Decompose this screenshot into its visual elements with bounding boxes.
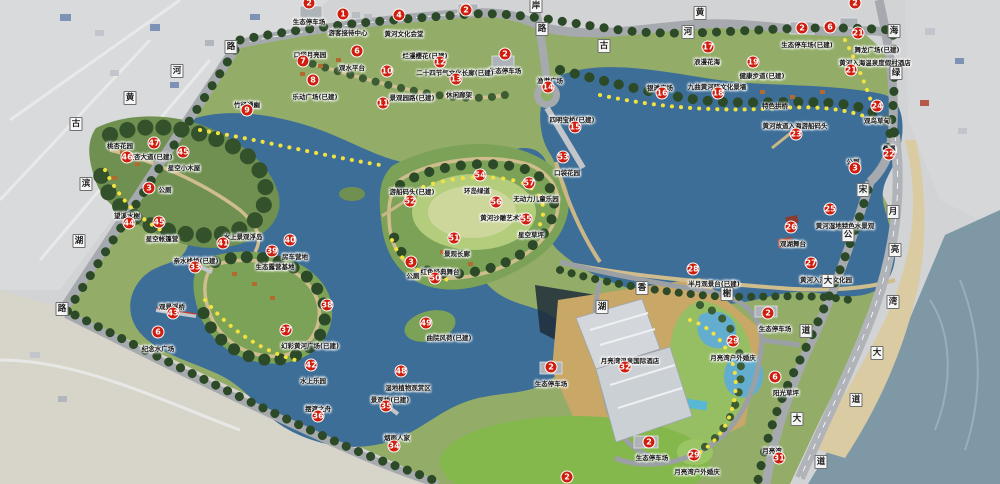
map-marker-45: 45 [177,146,190,159]
map-marker-25: 25 [824,203,837,216]
map-marker-48: 48 [395,365,408,378]
marker-label: 星空小木屋 [168,162,201,172]
marker-label: 景观园路(已建) [390,92,435,102]
road-name-char: 湖 [73,234,86,248]
marker-label: 休闲廊架 [446,89,472,99]
map-marker-26: 26 [785,221,798,234]
road-name-char: 香 [636,281,649,295]
map-marker-3: 3 [405,256,418,269]
map-marker-41: 41 [217,237,230,250]
marker-label: 浪漫花海 [694,56,720,66]
marker-label: 湿地植物观赏区 [385,382,431,392]
road-name-char: 榭 [721,287,734,301]
marker-label: 幻彩黄河广场(已建) [281,340,339,350]
road-name-char: 湖 [596,300,609,314]
road-name-char: 道 [800,324,813,338]
road-name-char: 月 [887,205,900,219]
marker-label: 无动力儿童乐园 [513,193,559,203]
map-marker-52: 52 [404,195,417,208]
marker-label: 星空帐篷营 [146,233,179,243]
marker-label: 阳光草坪 [773,387,799,397]
marker-label: 公厕 [159,184,172,194]
map-marker-39: 39 [266,245,279,258]
map-marker-42: 42 [305,359,318,372]
map-marker-3: 3 [143,182,156,195]
map-marker-47: 47 [148,137,161,150]
road-name-char: 大 [822,274,835,288]
map-marker-2: 2 [561,471,574,484]
map-marker-2: 2 [499,48,512,61]
map-marker-23: 23 [790,128,803,141]
marker-label: 景观长廊 [444,248,470,258]
marker-label: 公厕 [407,270,420,280]
map-marker-4: 4 [393,9,406,22]
road-name-char: 河 [682,25,695,39]
small-islet [339,187,365,201]
map-text: 特色拱桥 [762,100,788,110]
road-name-char: 黄 [124,91,137,105]
map-marker-51: 51 [448,232,461,245]
marker-label: 纪念水广场 [142,343,175,353]
road-name-char: 道 [850,393,863,407]
map-marker-7: 7 [297,55,310,68]
road-name-char: 路 [225,40,238,54]
map-marker-19: 19 [747,56,760,69]
marker-label: 桃杏花园 [107,140,133,150]
map-marker-49: 49 [420,317,433,330]
map-canvas: 生态停车场2游客接待中心1黄河文化会堂42生态停车场2观水平台6口袋月亮园7乐动… [0,0,1000,484]
map-marker-37: 37 [280,324,293,337]
map-marker-45: 45 [153,216,166,229]
map-marker-6: 6 [152,326,165,339]
map-marker-2: 2 [545,361,558,374]
road-name-char: 绿 [890,66,903,80]
road-name-char: 古 [70,117,83,131]
map-marker-29: 29 [727,335,740,348]
marker-label: 生态停车场 [535,378,568,388]
marker-label: 生态露营基地 [256,261,295,271]
map-marker-17: 17 [702,41,715,54]
marker-label: 月亮湾户外婚庆 [674,466,720,476]
map-marker-32: 32 [619,361,632,374]
map-marker-38: 38 [321,299,334,312]
map-marker-43: 43 [167,307,180,320]
map-marker-6: 6 [769,371,782,384]
map-marker-1: 1 [337,8,350,21]
road-name-char: 湾 [887,295,900,309]
map-marker-33: 33 [189,261,202,274]
map-marker-18: 18 [712,87,725,100]
map-marker-22: 22 [883,148,896,161]
marker-label: 健康步道(已建) [740,70,785,80]
map-marker-2: 2 [643,436,656,449]
marker-label: 生态停车场 [636,452,669,462]
map-marker-2: 2 [460,4,473,17]
map-marker-21: 21 [852,27,865,40]
map-marker-40: 40 [284,234,297,247]
map-marker-15: 15 [569,121,582,134]
road-name-char: 大 [791,412,804,426]
map-marker-12: 12 [434,56,447,69]
road-name-char: 路 [536,22,549,36]
map-marker-35: 35 [380,400,393,413]
marker-label: 乐动广场(已建) [293,91,338,101]
road-name-char: 公 [842,228,855,242]
map-marker-14: 14 [542,81,555,94]
map-marker-10: 10 [381,65,394,78]
road-name-char: 古 [598,39,611,53]
map-marker-29: 29 [688,449,701,462]
marker-label: 水上景观浮岛 [224,231,263,241]
map-marker-54: 54 [474,169,487,182]
road-name-char: 路 [56,302,69,316]
marker-label: 观水平台 [339,62,365,72]
road-name-char: 滨 [80,177,93,191]
map-marker-50: 50 [429,272,442,285]
map-marker-3: 3 [849,162,862,175]
marker-label: 银杏大道(已建) [128,151,173,161]
map-marker-57: 57 [523,177,536,190]
marker-label: 环岛绿道 [464,185,490,195]
marker-label: 舞龙广场(已建) [855,44,900,54]
road-name-char: 黄 [694,6,707,20]
map-marker-13: 13 [450,73,463,86]
road-name-char: 亮 [889,243,902,257]
map-marker-44: 44 [123,217,136,230]
road-name-char: 宋 [857,183,870,197]
road-name-char: 河 [171,64,184,78]
map-marker-46: 46 [121,151,134,164]
map-marker-8: 8 [307,74,320,87]
map-marker-28: 28 [687,263,700,276]
road-name-char: 岸 [530,0,543,13]
marker-label: 生态停车场(已建) [781,39,832,49]
marker-label: 生态停车场 [759,323,792,333]
road-name-char: 大 [871,346,884,360]
marker-label: 观鸟草甸 [864,115,890,125]
map-marker-2: 2 [762,307,775,320]
marker-label: 星空草坪 [518,229,544,239]
map-marker-2: 2 [796,22,809,35]
marker-label: 房车营地 [282,251,308,261]
map-marker-24: 24 [871,100,884,113]
map-marker-11: 11 [377,97,390,110]
marker-label: 曲院风荷(已建) [427,332,472,342]
map-marker-36: 36 [312,410,325,423]
map-marker-16: 16 [656,87,669,100]
map-marker-21: 21 [845,64,858,77]
map-marker-27: 27 [805,257,818,270]
map-marker-56: 56 [490,196,503,209]
road-name-char: 道 [815,455,828,469]
marker-label: 黄河文化会堂 [385,28,424,38]
map-marker-53: 53 [557,151,570,164]
map-marker-6: 6 [824,21,837,34]
map-marker-6: 6 [351,45,364,58]
road-name-char: 海 [888,24,901,38]
marker-label: 观湖舞台 [780,238,806,248]
map-marker-34: 34 [388,440,401,453]
marker-label: 水上乐园 [300,375,326,385]
map-marker-31: 31 [773,452,786,465]
marker-label: 月亮湾户外婚庆 [710,352,756,362]
marker-label: 口袋花园 [554,167,580,177]
map-marker-9: 9 [241,104,254,117]
map-marker-55: 55 [520,213,533,226]
marker-label: 生态停车场 [293,16,326,26]
marker-label: 游客接待中心 [329,27,368,37]
